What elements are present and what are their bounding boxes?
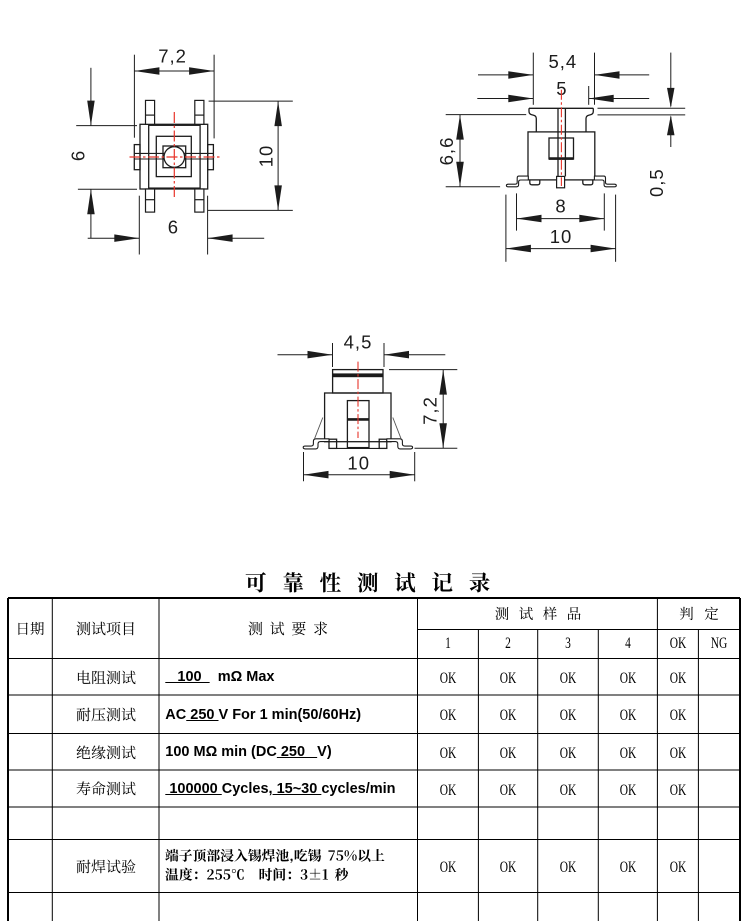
- svg-text:6: 6: [168, 216, 179, 237]
- svg-text:7,2: 7,2: [420, 396, 441, 425]
- svg-text:10: 10: [550, 226, 573, 247]
- svg-text:0,5: 0,5: [646, 168, 667, 197]
- svg-text:10: 10: [347, 452, 370, 473]
- svg-text:7,2: 7,2: [158, 46, 187, 67]
- svg-text:6,6: 6,6: [436, 137, 457, 166]
- svg-text:6: 6: [68, 150, 89, 161]
- svg-text:10: 10: [256, 145, 277, 168]
- svg-text:8: 8: [555, 195, 566, 216]
- svg-text:5,4: 5,4: [548, 51, 577, 72]
- svg-text:4,5: 4,5: [344, 332, 373, 353]
